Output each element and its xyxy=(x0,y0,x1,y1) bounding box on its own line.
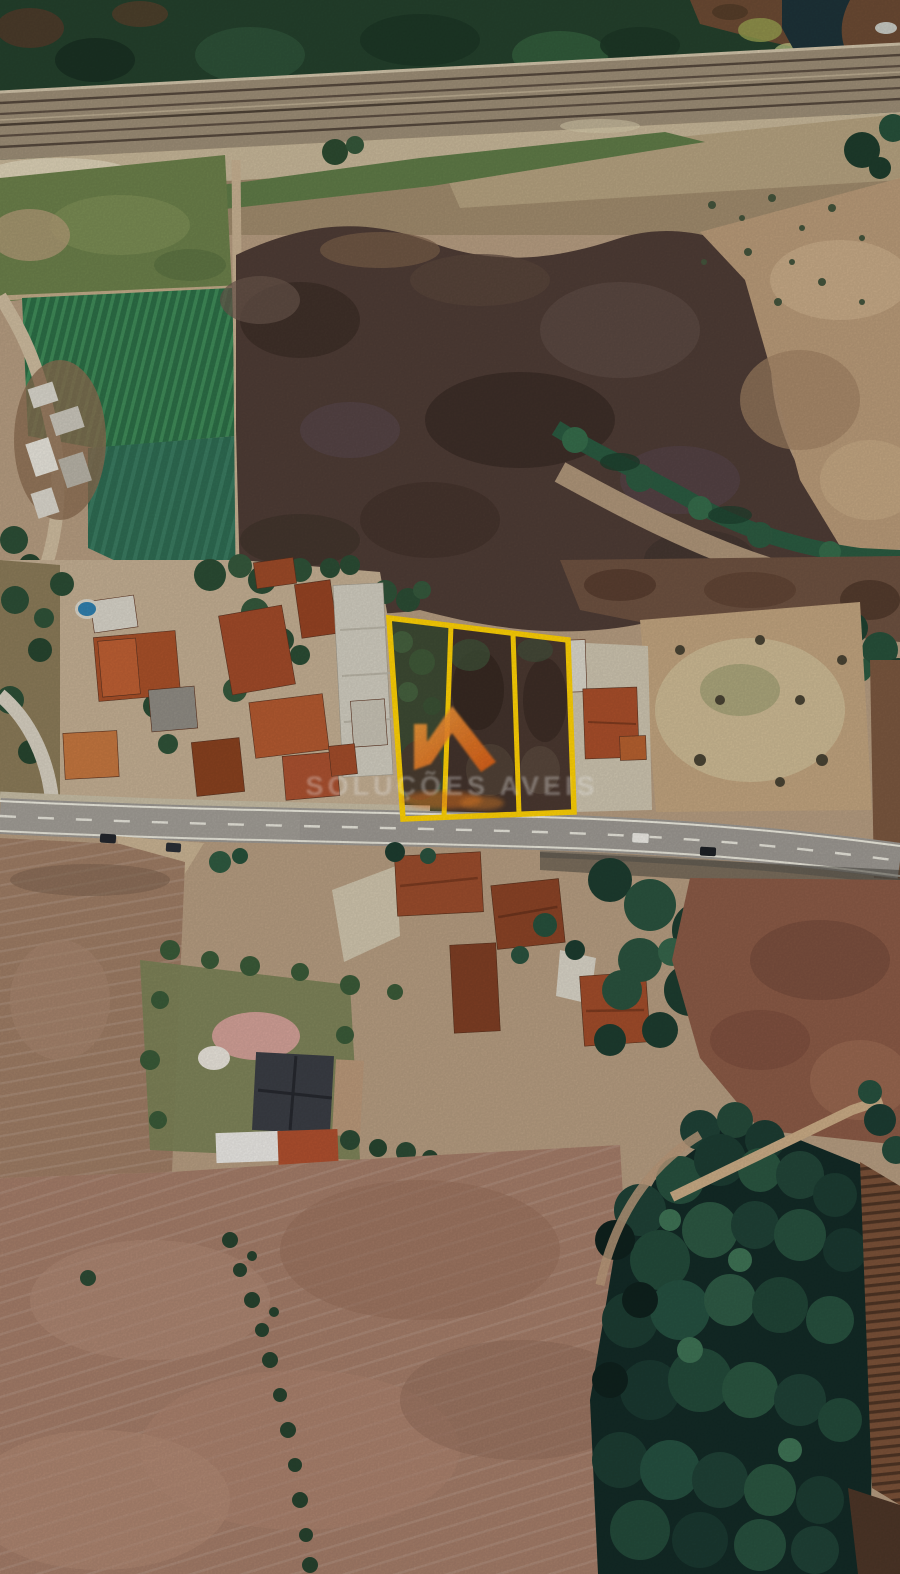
image-grain xyxy=(0,0,900,1574)
satellite-image: SOLUÇÕES AVEIS xyxy=(0,0,900,1574)
